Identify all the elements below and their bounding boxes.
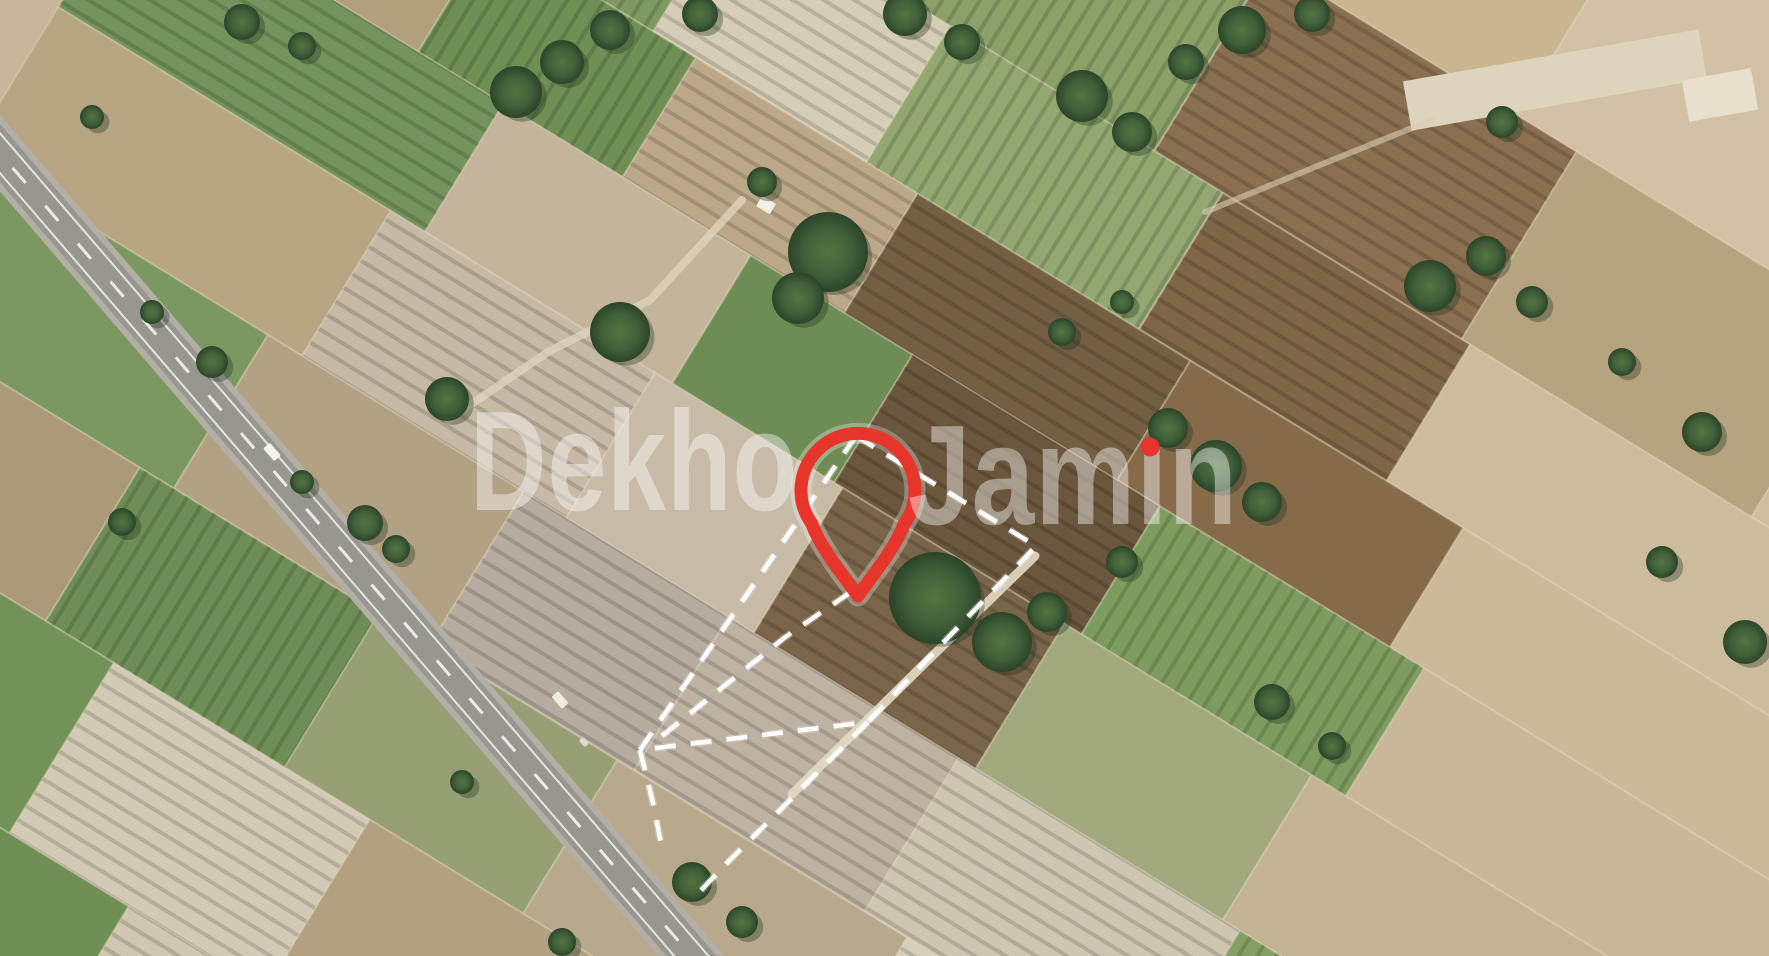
tree bbox=[1466, 236, 1506, 276]
tree bbox=[1110, 290, 1134, 314]
tree bbox=[425, 377, 469, 421]
tree bbox=[80, 105, 104, 129]
tree bbox=[450, 770, 474, 794]
tree bbox=[1318, 732, 1346, 760]
tree bbox=[108, 508, 136, 536]
tree bbox=[1254, 684, 1290, 720]
aerial-photo-stage: Dekho Jamın bbox=[0, 0, 1769, 956]
watermark-word-2: Jamın bbox=[908, 396, 1238, 555]
tree bbox=[972, 612, 1032, 672]
tree bbox=[772, 272, 824, 324]
tree bbox=[548, 928, 576, 956]
tree bbox=[1486, 106, 1518, 138]
tree bbox=[490, 66, 542, 118]
tree bbox=[1242, 482, 1282, 522]
tree bbox=[196, 346, 228, 378]
tree bbox=[1112, 112, 1152, 152]
tree bbox=[1646, 546, 1678, 578]
tree bbox=[590, 10, 630, 50]
tree bbox=[290, 470, 314, 494]
tree bbox=[726, 906, 758, 938]
tree bbox=[1027, 592, 1067, 632]
tree bbox=[1048, 318, 1076, 346]
tree bbox=[540, 40, 584, 84]
tree bbox=[1723, 620, 1767, 664]
tree bbox=[1516, 286, 1548, 318]
tree bbox=[140, 300, 164, 324]
tree bbox=[1404, 260, 1456, 312]
tree bbox=[889, 552, 981, 644]
watermark-i-dot bbox=[1141, 438, 1160, 457]
tree bbox=[747, 167, 777, 197]
tree bbox=[1056, 70, 1108, 122]
tree bbox=[382, 535, 410, 563]
watermark-word-1: Dekho bbox=[470, 382, 798, 541]
tree bbox=[288, 32, 316, 60]
aerial-photo: Dekho Jamın bbox=[0, 0, 1769, 956]
tree bbox=[347, 505, 383, 541]
tree bbox=[1608, 348, 1636, 376]
tree bbox=[224, 4, 260, 40]
tree bbox=[1168, 44, 1204, 80]
tree bbox=[1682, 412, 1722, 452]
tree bbox=[590, 302, 650, 362]
tree bbox=[944, 24, 980, 60]
tree bbox=[1218, 6, 1266, 54]
